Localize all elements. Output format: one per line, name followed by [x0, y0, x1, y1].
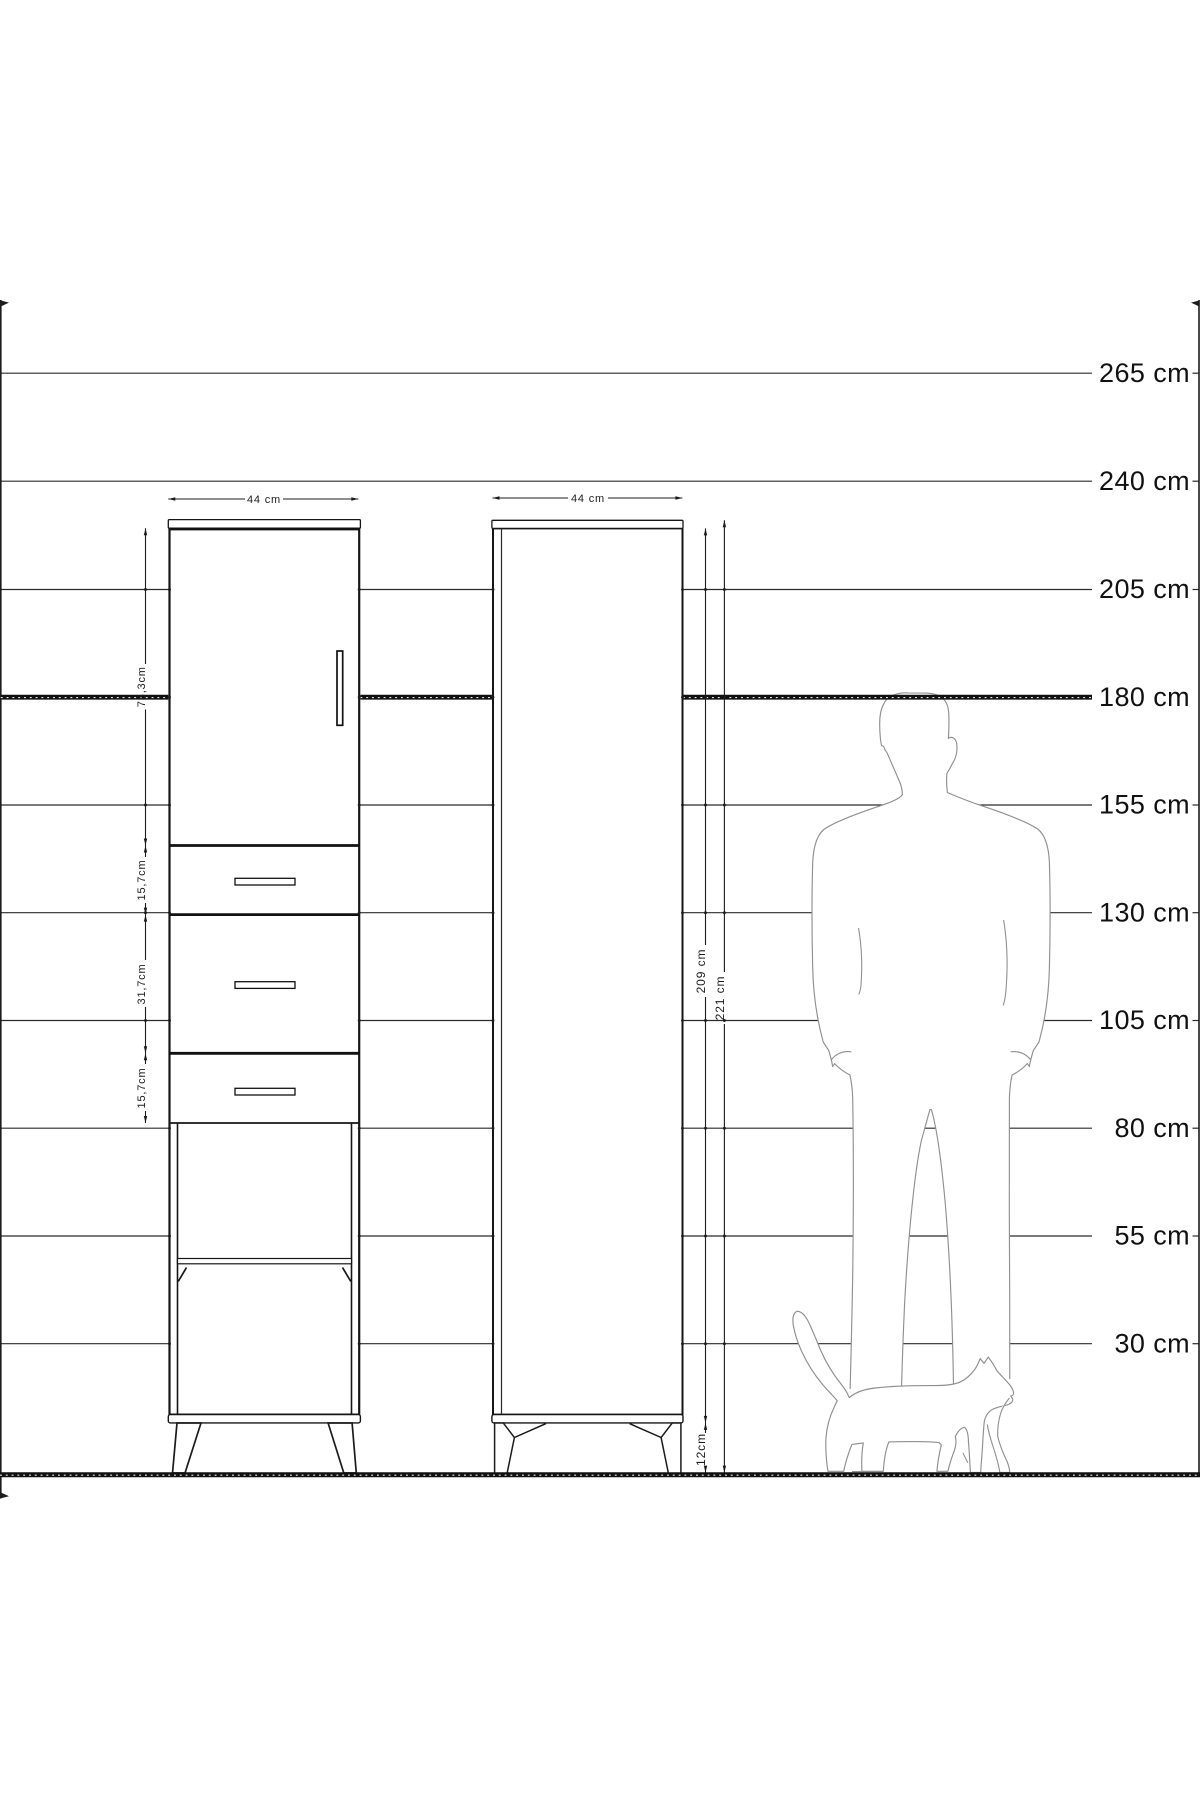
- svg-text:205 cm: 205 cm: [1099, 574, 1190, 604]
- svg-text:73,3cm: 73,3cm: [136, 666, 148, 707]
- svg-text:44 cm: 44 cm: [247, 494, 281, 506]
- svg-text:15,7cm: 15,7cm: [136, 1068, 148, 1109]
- svg-text:30 cm: 30 cm: [1114, 1328, 1190, 1358]
- svg-text:44 cm: 44 cm: [571, 493, 605, 505]
- svg-text:15,7cm: 15,7cm: [136, 860, 148, 901]
- svg-text:180 cm: 180 cm: [1099, 682, 1190, 712]
- svg-text:209 cm: 209 cm: [694, 949, 708, 994]
- svg-text:31,7cm: 31,7cm: [136, 964, 148, 1005]
- svg-text:80 cm: 80 cm: [1114, 1113, 1190, 1143]
- svg-text:265 cm: 265 cm: [1099, 358, 1190, 388]
- svg-text:240 cm: 240 cm: [1099, 466, 1190, 496]
- svg-text:221 cm: 221 cm: [713, 976, 727, 1021]
- svg-text:55 cm: 55 cm: [1114, 1221, 1190, 1251]
- svg-text:130 cm: 130 cm: [1099, 897, 1190, 927]
- svg-text:105 cm: 105 cm: [1099, 1005, 1190, 1035]
- svg-text:12cm: 12cm: [694, 1433, 708, 1466]
- svg-text:155 cm: 155 cm: [1099, 790, 1190, 820]
